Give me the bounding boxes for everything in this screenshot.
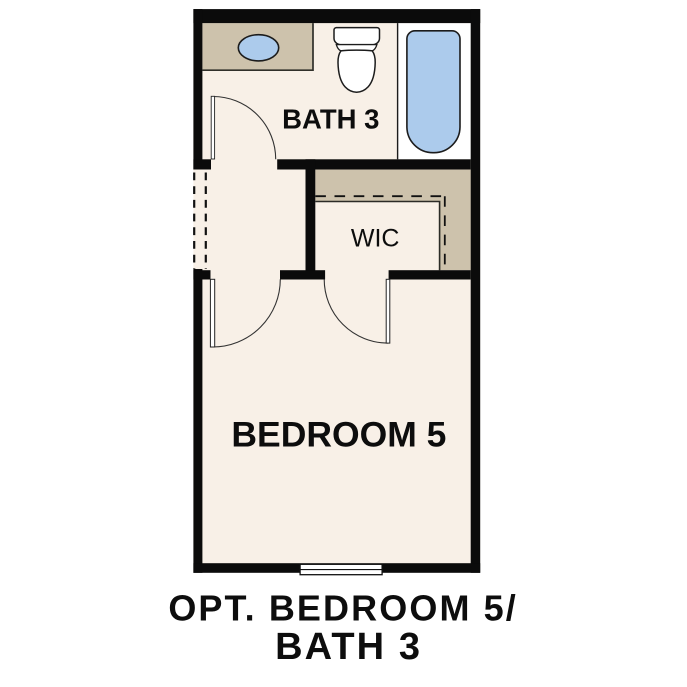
svg-text:BEDROOM 5: BEDROOM 5 [231,415,446,455]
svg-text:BATH 3: BATH 3 [282,103,379,134]
svg-text:WIC: WIC [351,224,400,252]
svg-text:BATH 3: BATH 3 [275,626,422,668]
svg-text:OPT. BEDROOM 5/: OPT. BEDROOM 5/ [168,588,518,629]
